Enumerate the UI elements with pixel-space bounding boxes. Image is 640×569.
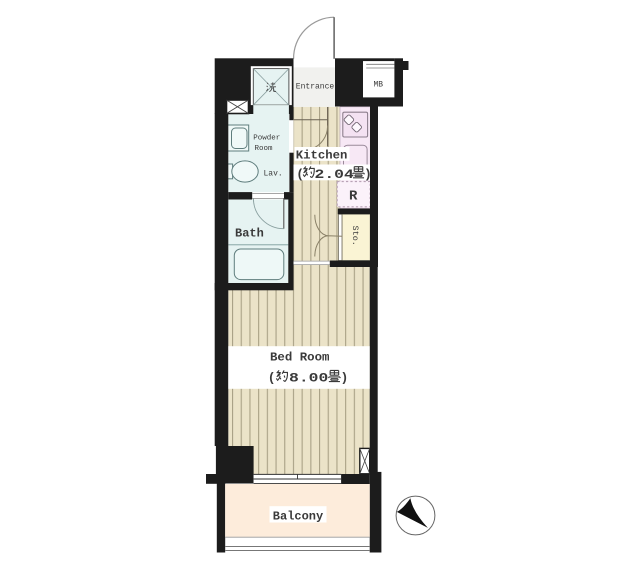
svg-text:R: R (349, 189, 358, 205)
svg-text:8.00: 8.00 (289, 372, 328, 386)
svg-text:Sto.: Sto. (350, 226, 360, 246)
svg-text:Bath: Bath (235, 227, 264, 241)
svg-text:): ) (341, 370, 349, 385)
svg-text:Powder: Powder (253, 135, 280, 143)
svg-text:Room: Room (255, 145, 274, 153)
svg-text:Bed Room: Bed Room (270, 350, 330, 364)
svg-text:(: ( (268, 370, 276, 385)
svg-text:Entrance: Entrance (296, 83, 335, 92)
svg-text:Balcony: Balcony (273, 509, 323, 523)
svg-text:Kitchen: Kitchen (296, 148, 348, 162)
svg-text:(: ( (296, 167, 304, 182)
svg-text:2.04: 2.04 (315, 168, 354, 182)
svg-text:): ) (364, 167, 372, 182)
svg-text:MB: MB (374, 81, 384, 90)
svg-text:Lav.: Lav. (264, 170, 283, 179)
